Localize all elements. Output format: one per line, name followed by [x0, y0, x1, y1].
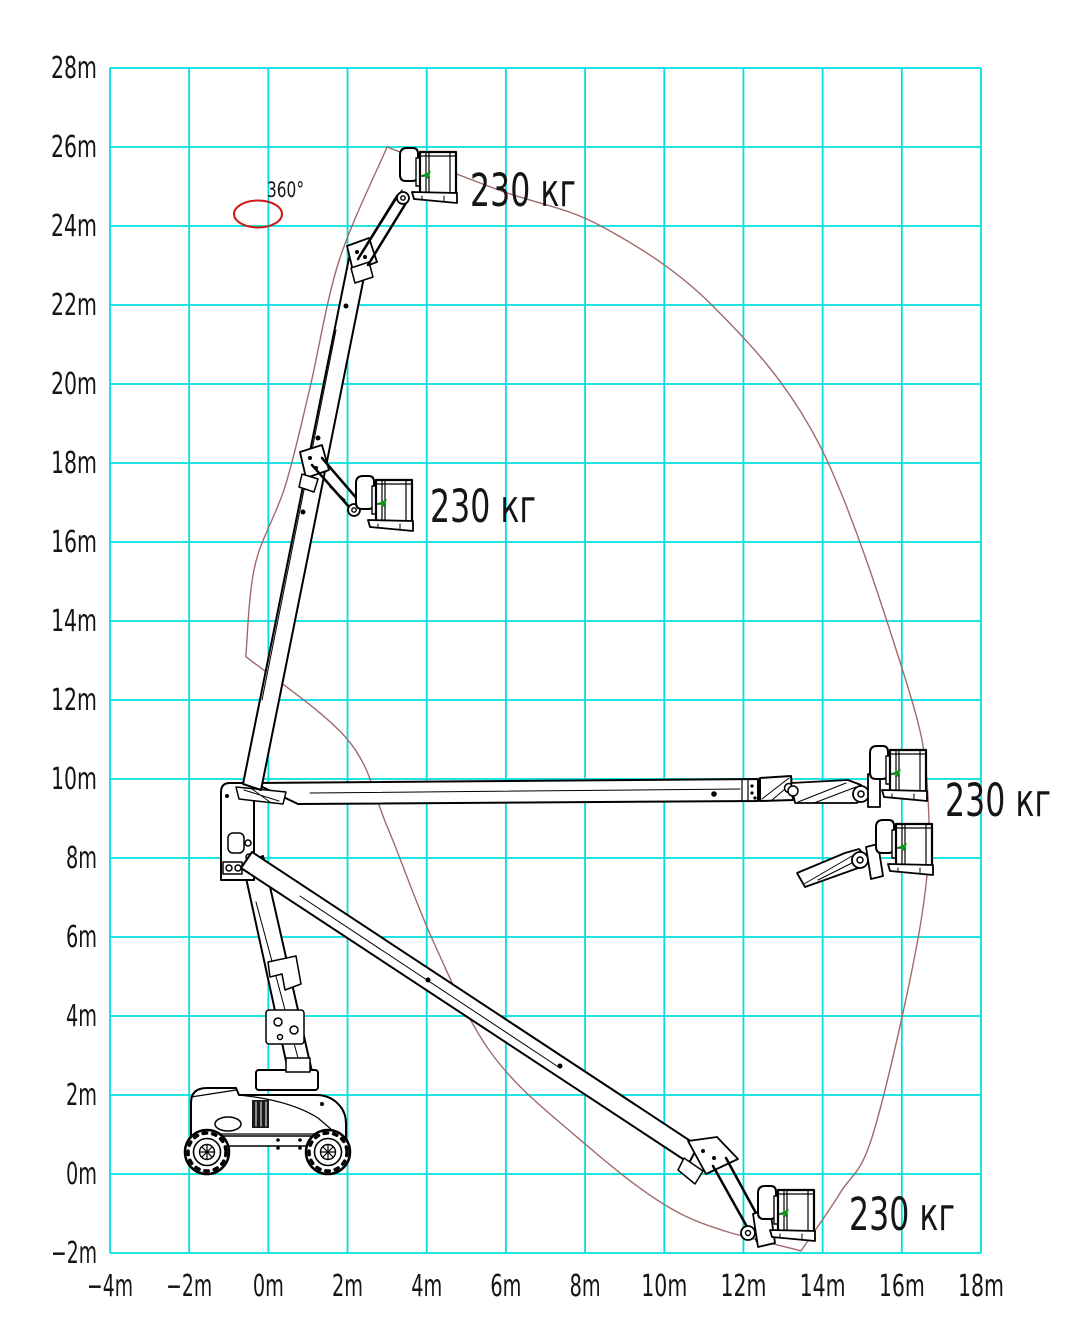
x-tick-label: 8m	[570, 1269, 601, 1304]
platform-mid	[356, 476, 413, 531]
x-tick-label: 16m	[879, 1269, 925, 1304]
rotation-label: 360°	[267, 178, 304, 202]
x-tick-label: 14m	[800, 1269, 846, 1304]
rotation-ellipse	[234, 201, 282, 228]
platform-right-low	[876, 820, 933, 875]
capacity-labels: 230 кг 230 кг 230 кг 230 кг	[430, 164, 1051, 1241]
y-tick-label: 18m	[51, 446, 97, 481]
x-tick-label: 18m	[958, 1269, 1004, 1304]
capacity-label-top: 230 кг	[470, 164, 576, 217]
x-tick-label: −4m	[87, 1269, 133, 1304]
y-tick-label: 26m	[51, 130, 97, 165]
y-tick-label: 2m	[66, 1078, 97, 1113]
turret	[256, 1070, 318, 1090]
boom-horizontal	[236, 776, 794, 804]
capacity-label-bottom: 230 кг	[849, 1188, 955, 1241]
x-tick-label: 0m	[253, 1269, 284, 1304]
x-tick-label: 4m	[411, 1269, 442, 1304]
y-tick-label: 14m	[51, 604, 97, 639]
capacity-label-mid: 230 кг	[430, 480, 536, 533]
engine-vent	[215, 1117, 241, 1131]
x-tick-label: 10m	[641, 1269, 687, 1304]
y-tick-label: 16m	[51, 525, 97, 560]
y-tick-label: −2m	[51, 1236, 97, 1271]
jib-right-low	[797, 844, 883, 887]
y-tick-label: 6m	[66, 920, 97, 955]
jib-top	[347, 190, 409, 283]
y-tick-label: 0m	[66, 1157, 97, 1192]
machine-drawings	[185, 148, 933, 1247]
grid	[110, 68, 981, 1253]
y-tick-label: 24m	[51, 209, 97, 244]
x-tick-label: 2m	[332, 1269, 363, 1304]
reach-diagram: −4m−2m0m2m4m6m8m10m12m14m16m18m−2m0m2m4m…	[0, 0, 1080, 1344]
x-tick-label: 12m	[720, 1269, 766, 1304]
y-tick-label: 22m	[51, 288, 97, 323]
x-tick-label: 6m	[490, 1269, 521, 1304]
y-tick-label: 12m	[51, 683, 97, 718]
y-tick-label: 28m	[51, 51, 97, 86]
wheel-rear	[306, 1130, 350, 1174]
y-tick-label: 20m	[51, 367, 97, 402]
y-tick-label: 8m	[66, 841, 97, 876]
y-tick-label: 4m	[66, 999, 97, 1034]
wheel-front	[185, 1130, 229, 1174]
capacity-label-right: 230 кг	[945, 774, 1051, 827]
x-tick-label: −2m	[166, 1269, 212, 1304]
reach-diagram-page: −4m−2m0m2m4m6m8m10m12m14m16m18m−2m0m2m4m…	[0, 0, 1080, 1344]
y-tick-label: 10m	[51, 762, 97, 797]
